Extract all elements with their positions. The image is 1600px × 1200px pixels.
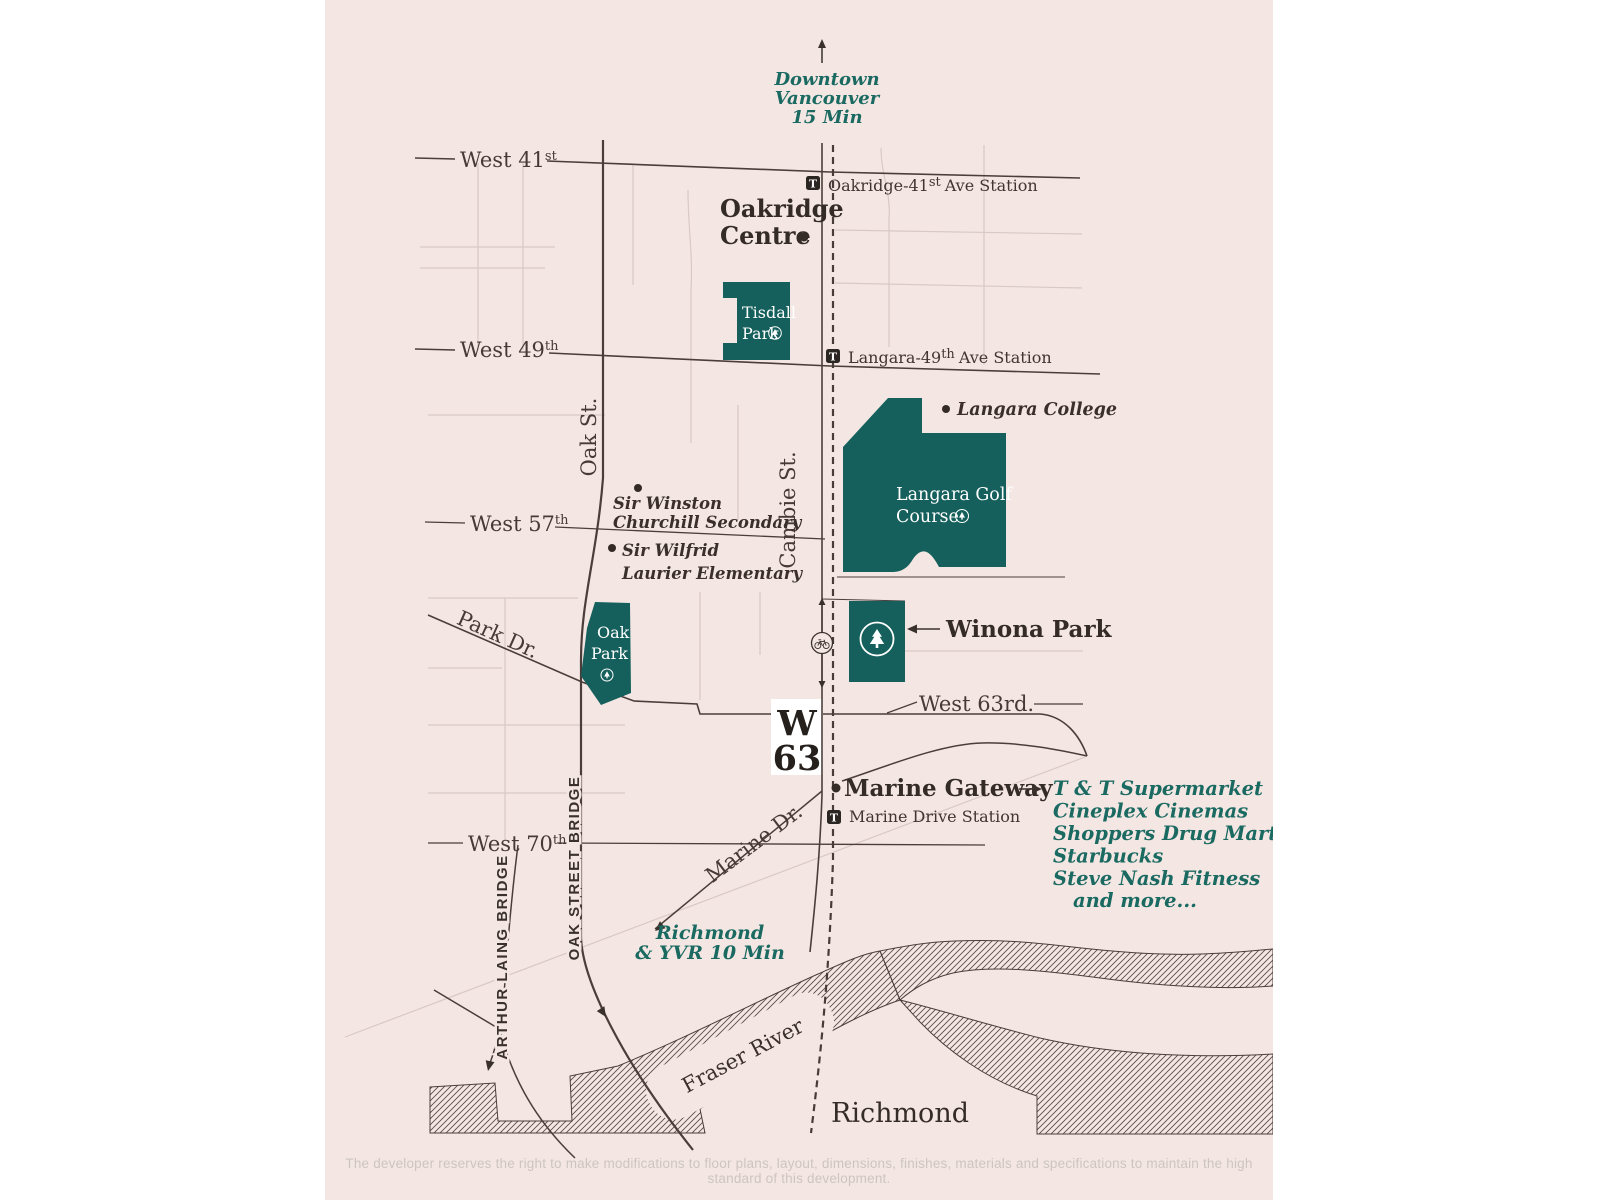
station-langara: T Langara-49thAve Station (826, 347, 1052, 367)
amenity-item: Steve Nash Fitness (1053, 867, 1260, 890)
richmond-yvr-line1: Richmond (655, 922, 764, 944)
landmark-winona-park: Winona Park (907, 616, 1113, 643)
amenities-list: T & T Supermarket Cineplex Cinemas Shopp… (1053, 777, 1273, 912)
station-label-marine: Marine Drive Station (849, 807, 1020, 826)
richmond-yvr-line2: & YVR 10 Min (635, 942, 785, 964)
poi-dot-icon (608, 544, 616, 552)
minor-street-grid (345, 145, 1085, 1037)
amenity-item: Shoppers Drug Mart (1053, 822, 1273, 845)
laurier-line1: Sir Wilfrid (622, 541, 719, 560)
landmark-laurier-elementary: Sir Wilfrid Laurier Elementary (608, 541, 803, 583)
disclaimer-text: The developer reserves the right to make… (325, 1156, 1273, 1186)
downtown-line2: Vancouver (775, 88, 881, 109)
landmark-marine-gateway: Marine Gateway (832, 775, 1054, 802)
oakridge-centre-line1: Oakridge (720, 194, 844, 223)
oak-park-label: Oak (597, 623, 630, 642)
w63-logo-line2: 63 (773, 738, 822, 779)
golf-course-label2: Course (896, 507, 959, 527)
map-panel: Fraser River Richmond (325, 0, 1273, 1200)
location-map: Fraser River Richmond (325, 0, 1273, 1200)
arrow-left-icon (907, 625, 917, 634)
landmark-langara-college: Langara College (942, 400, 1117, 420)
shoreline-northeast (880, 940, 1273, 1000)
langara-college-label: Langara College (956, 400, 1117, 420)
golf-course-label: Langara Golf (896, 485, 1013, 505)
street-label-oak: Oak St. (577, 398, 601, 477)
downtown-line3: 15 Min (791, 107, 862, 128)
street-label-park-dr: Park Dr. (454, 606, 543, 663)
station-label-langara: Langara-49thAve Station (848, 347, 1052, 367)
downtown-line1: Downtown (773, 69, 879, 90)
street-label-west49: West 49th (460, 338, 559, 362)
bike-icon (812, 633, 833, 654)
landmark-oakridge-centre: Oakridge Centre (720, 194, 844, 250)
arrow-oak-bridge-icon (597, 1006, 610, 1019)
street-label-west41: West 41st (460, 148, 558, 172)
bike-route-marker (812, 598, 833, 688)
churchill-line1: Sir Winston (613, 494, 722, 513)
amenity-item: Cineplex Cinemas (1053, 800, 1248, 823)
arrow-down-icon (819, 681, 826, 688)
richmond-yvr-direction: Richmond & YVR 10 Min (635, 922, 785, 964)
poi-dot-icon (942, 405, 950, 413)
oak-park-label2: Park (591, 644, 628, 663)
winona-park-label: Winona Park (945, 616, 1113, 643)
richmond-city-label: Richmond (831, 1098, 969, 1129)
poi-dot-icon (832, 784, 841, 793)
landmark-churchill-secondary: Sir Winston Churchill Secondary (613, 484, 803, 532)
station-oakridge: T Oakridge-41stAve Station (806, 175, 1038, 195)
station-label-oakridge: Oakridge-41stAve Station (828, 175, 1038, 195)
street-label-oak-bridge: OAK STREET BRIDGE (566, 776, 583, 961)
tisdall-park-label: Tisdall (742, 303, 796, 322)
street-label-arthur-laing: ARTHUR LAING BRIDGE (494, 854, 511, 1059)
arrow-arthur-laing-icon (484, 1060, 495, 1072)
churchill-line2: Churchill Secondary (613, 513, 803, 532)
amenity-item: Starbucks (1053, 845, 1163, 868)
amenity-item: T & T Supermarket (1053, 777, 1263, 800)
street-label-west63: West 63rd. (919, 692, 1034, 716)
t-station-letter: T (829, 351, 838, 364)
street-label-west57: West 57th (470, 512, 569, 536)
laurier-line2: Laurier Elementary (621, 564, 803, 583)
station-marine-drive: T Marine Drive Station (827, 807, 1020, 826)
arrow-up-icon (818, 39, 826, 48)
amenity-item: and more... (1073, 889, 1197, 912)
downtown-arrow (818, 39, 826, 63)
oakridge-centre-line2: Centre (720, 221, 811, 250)
t-station-letter: T (830, 812, 839, 825)
w63-site-marker: W 63 (771, 699, 823, 779)
downtown-direction: Downtown Vancouver 15 Min (773, 69, 880, 128)
poi-dot-icon (800, 233, 809, 242)
street-label-west70: West 70th (468, 832, 567, 856)
t-station-letter: T (809, 178, 818, 191)
poi-dot-icon (634, 484, 642, 492)
street-label-cambie: Cambie St. (776, 451, 800, 568)
